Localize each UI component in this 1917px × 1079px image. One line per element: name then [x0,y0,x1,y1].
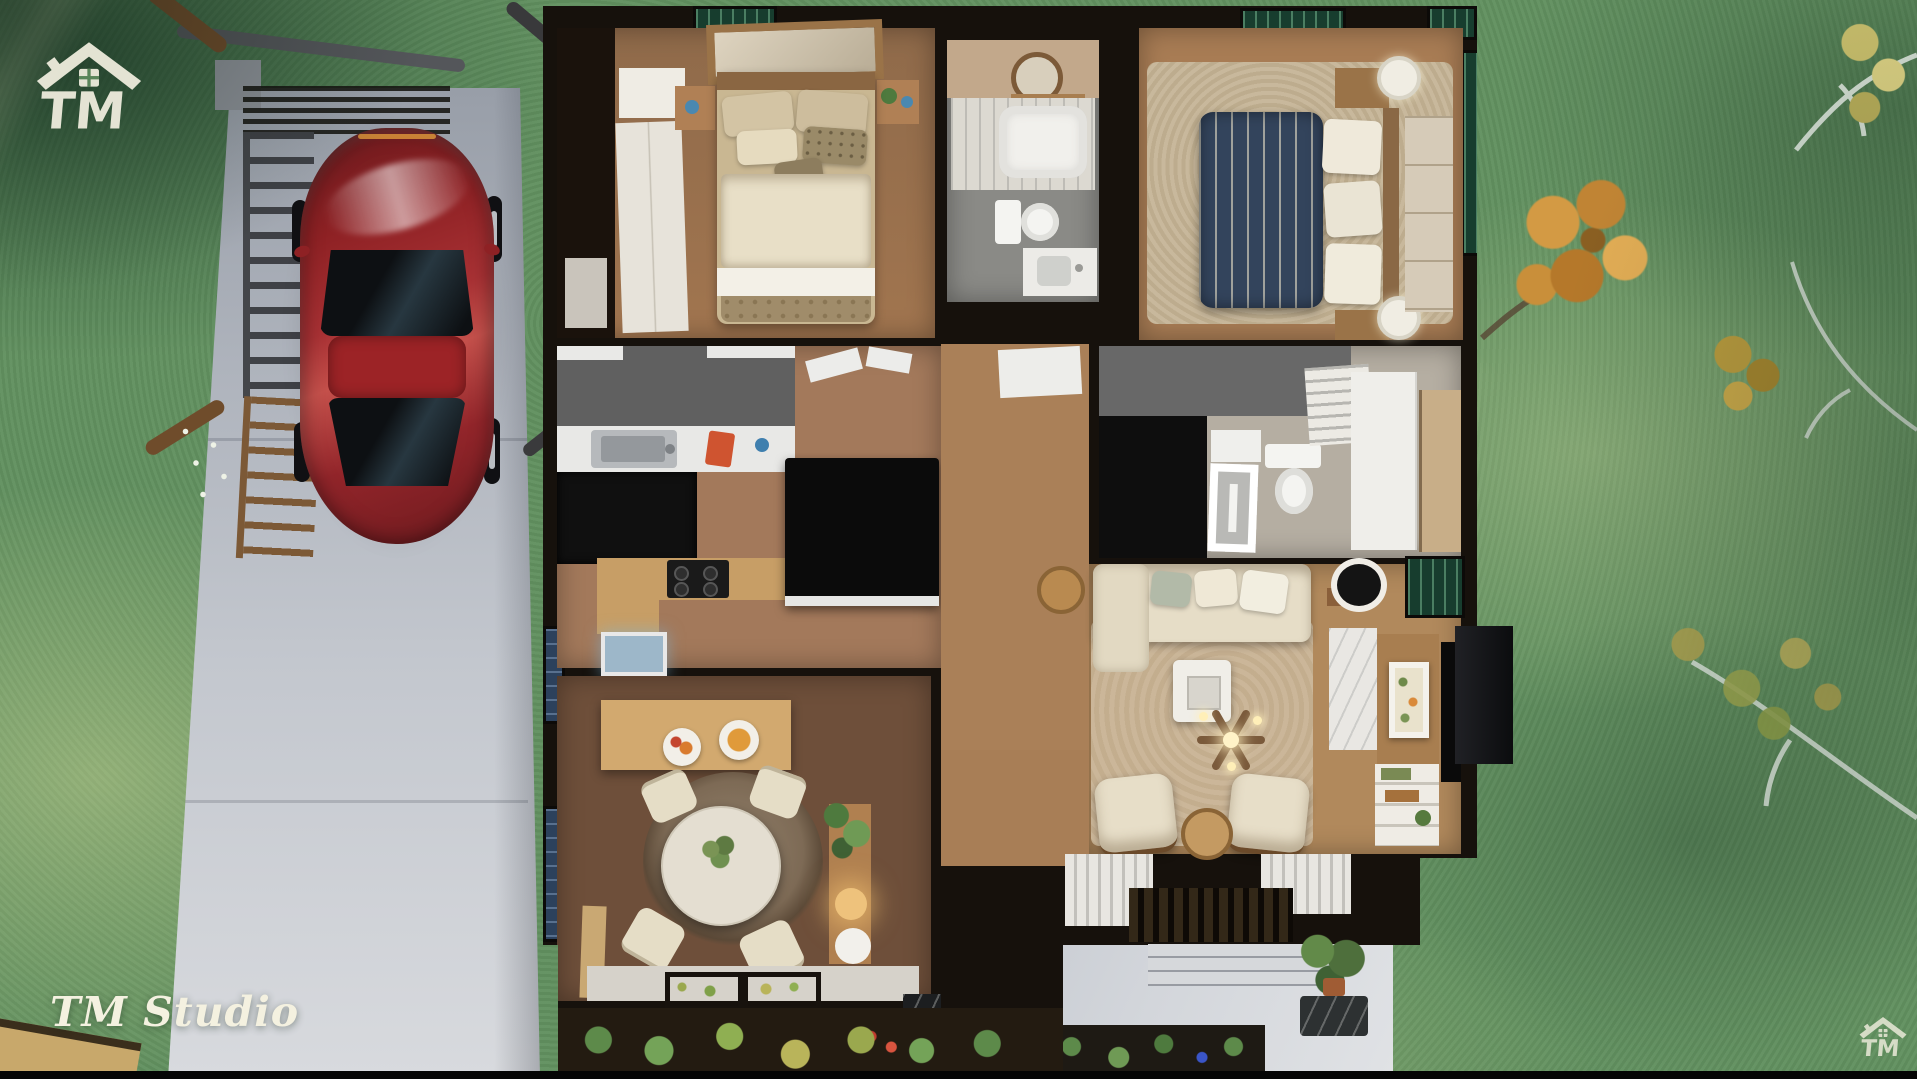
vanity-dark [1099,416,1207,558]
table-lamp [1377,56,1421,100]
toilet-tank [995,200,1021,244]
bathtub [999,106,1087,178]
crown-trim [707,346,795,358]
studio-watermark: TM Studio [50,988,299,1036]
fan-light [1253,716,1262,725]
bed-duvet [721,174,871,268]
bay-window [665,972,743,1011]
bed-pillow [1323,180,1383,238]
framed-art [1389,662,1429,738]
house-cutaway [543,6,1477,1011]
studio-logo-small: TM [1858,1016,1908,1062]
room-kitchen [557,346,941,668]
foot-blanket [721,296,871,322]
porch-slat-roof [1129,888,1293,942]
fireplace-marble [1329,628,1377,750]
grass-flowers [175,418,245,508]
bed-pillow [1324,243,1382,305]
table-tray [1187,676,1221,710]
room-hallway [941,344,1089,750]
open-door [866,346,913,373]
nightstand [675,86,715,130]
bed-headboard [717,72,875,90]
window [1405,556,1465,618]
svg-text:TM: TM [1860,1036,1901,1062]
burner [674,582,689,597]
leaning-mirror [1207,463,1258,553]
closet [557,28,615,338]
dresser [565,258,607,328]
yellow-leaf-cluster [1822,10,1917,140]
stool [1037,566,1085,614]
cup [901,96,913,108]
wood-counter [597,600,659,634]
render-canvas: TM TM Studio TM [0,0,1917,1079]
shelf-plant [1415,810,1431,826]
kitchen-sink [591,430,677,468]
accent-chair [1093,772,1179,859]
plant [881,88,897,104]
bed-headboard [1383,108,1399,312]
ceiling-fan [1197,706,1265,774]
marble-bench [1300,996,1368,1036]
wardrobe [615,121,688,333]
terracotta-pot [1323,978,1345,996]
bay-flowerbed [558,1008,1063,1079]
room-bedroom-2 [1139,28,1463,340]
burner [703,582,718,597]
room-bathroom-2 [1099,346,1461,558]
wood-counter [597,558,813,600]
autumn-tree-small [1698,318,1798,422]
sofa-pillow [1194,568,1239,608]
bed-pillow [736,128,798,165]
art-botanical [1395,668,1423,732]
dining-table [661,806,781,926]
striped-bed-duvet [1199,112,1323,308]
cup [685,100,699,114]
fan-light [1227,762,1236,771]
toilet-bowl [1021,203,1059,241]
sink-console [1211,430,1261,462]
sofa-chaise [1093,564,1149,672]
side-table [1181,808,1233,860]
island-base-trim [785,596,939,606]
double-bed [717,72,875,324]
driveway-joint [178,800,528,803]
sphere-lamp [835,928,871,964]
toilet [995,198,1061,246]
car-body [300,128,494,544]
car-rear-window [328,398,466,486]
bed-pillow [1322,119,1383,176]
room-dining [557,676,931,1001]
bed-sheet [717,268,875,296]
studio-logo: TM [33,40,145,142]
toilet-bowl [1275,468,1313,514]
red-car [292,122,502,552]
sofa-pillow [1149,570,1192,608]
fan-hub-light [1223,732,1239,748]
tall-cabinet [1351,372,1417,550]
room-living [1089,564,1461,854]
faucet [1075,264,1083,272]
vanity-sink [1023,248,1097,296]
toilet [1265,444,1321,518]
food-plate [719,720,759,760]
room-bathroom-1 [947,40,1099,302]
letterbox-bar [0,1071,1917,1079]
pergola-log-post [145,0,230,56]
sink-basin [601,436,665,462]
burner [703,566,718,581]
glow-lamp [835,888,867,920]
open-door [805,347,863,382]
door [1419,390,1461,552]
autumn-tree-large [1505,160,1665,338]
bookshelf [1375,764,1439,846]
console-plants [819,794,877,866]
car-windshield [320,250,474,336]
black-counter-run [557,472,697,564]
centerpiece-plant [697,834,743,872]
breakfast-bar [601,700,791,770]
display-cabinet [601,632,667,676]
car-roof [328,336,466,398]
fan-light [1199,712,1208,721]
sink-basin [1037,256,1071,286]
books [1385,790,1419,802]
room-bedroom-1 [557,28,935,338]
yellow-leaf-cluster [1645,592,1860,767]
kitchen-island [785,458,939,606]
burner [674,566,689,581]
gas-stove [667,560,729,598]
dresser [1405,116,1453,312]
toilet-tank [1265,444,1321,468]
car-hood-highlight [316,145,478,250]
chimney-bumpout [1455,626,1513,764]
open-door [998,346,1082,398]
food-plate [663,728,701,766]
faucet [665,444,675,454]
kitchen-counter [557,426,795,472]
accent-chair [1225,772,1311,859]
books [1381,768,1411,780]
car-grille-glint [358,134,436,139]
cutting-board [705,430,735,467]
crown-trim [557,346,623,360]
wall-bowl-decor [1331,558,1387,612]
room-entry [941,750,1089,866]
bay-window [743,972,821,1011]
logo-letters: TM [37,83,128,142]
blue-cup [755,438,769,452]
nightstand [877,80,919,124]
sofa-pillow [1238,569,1289,615]
